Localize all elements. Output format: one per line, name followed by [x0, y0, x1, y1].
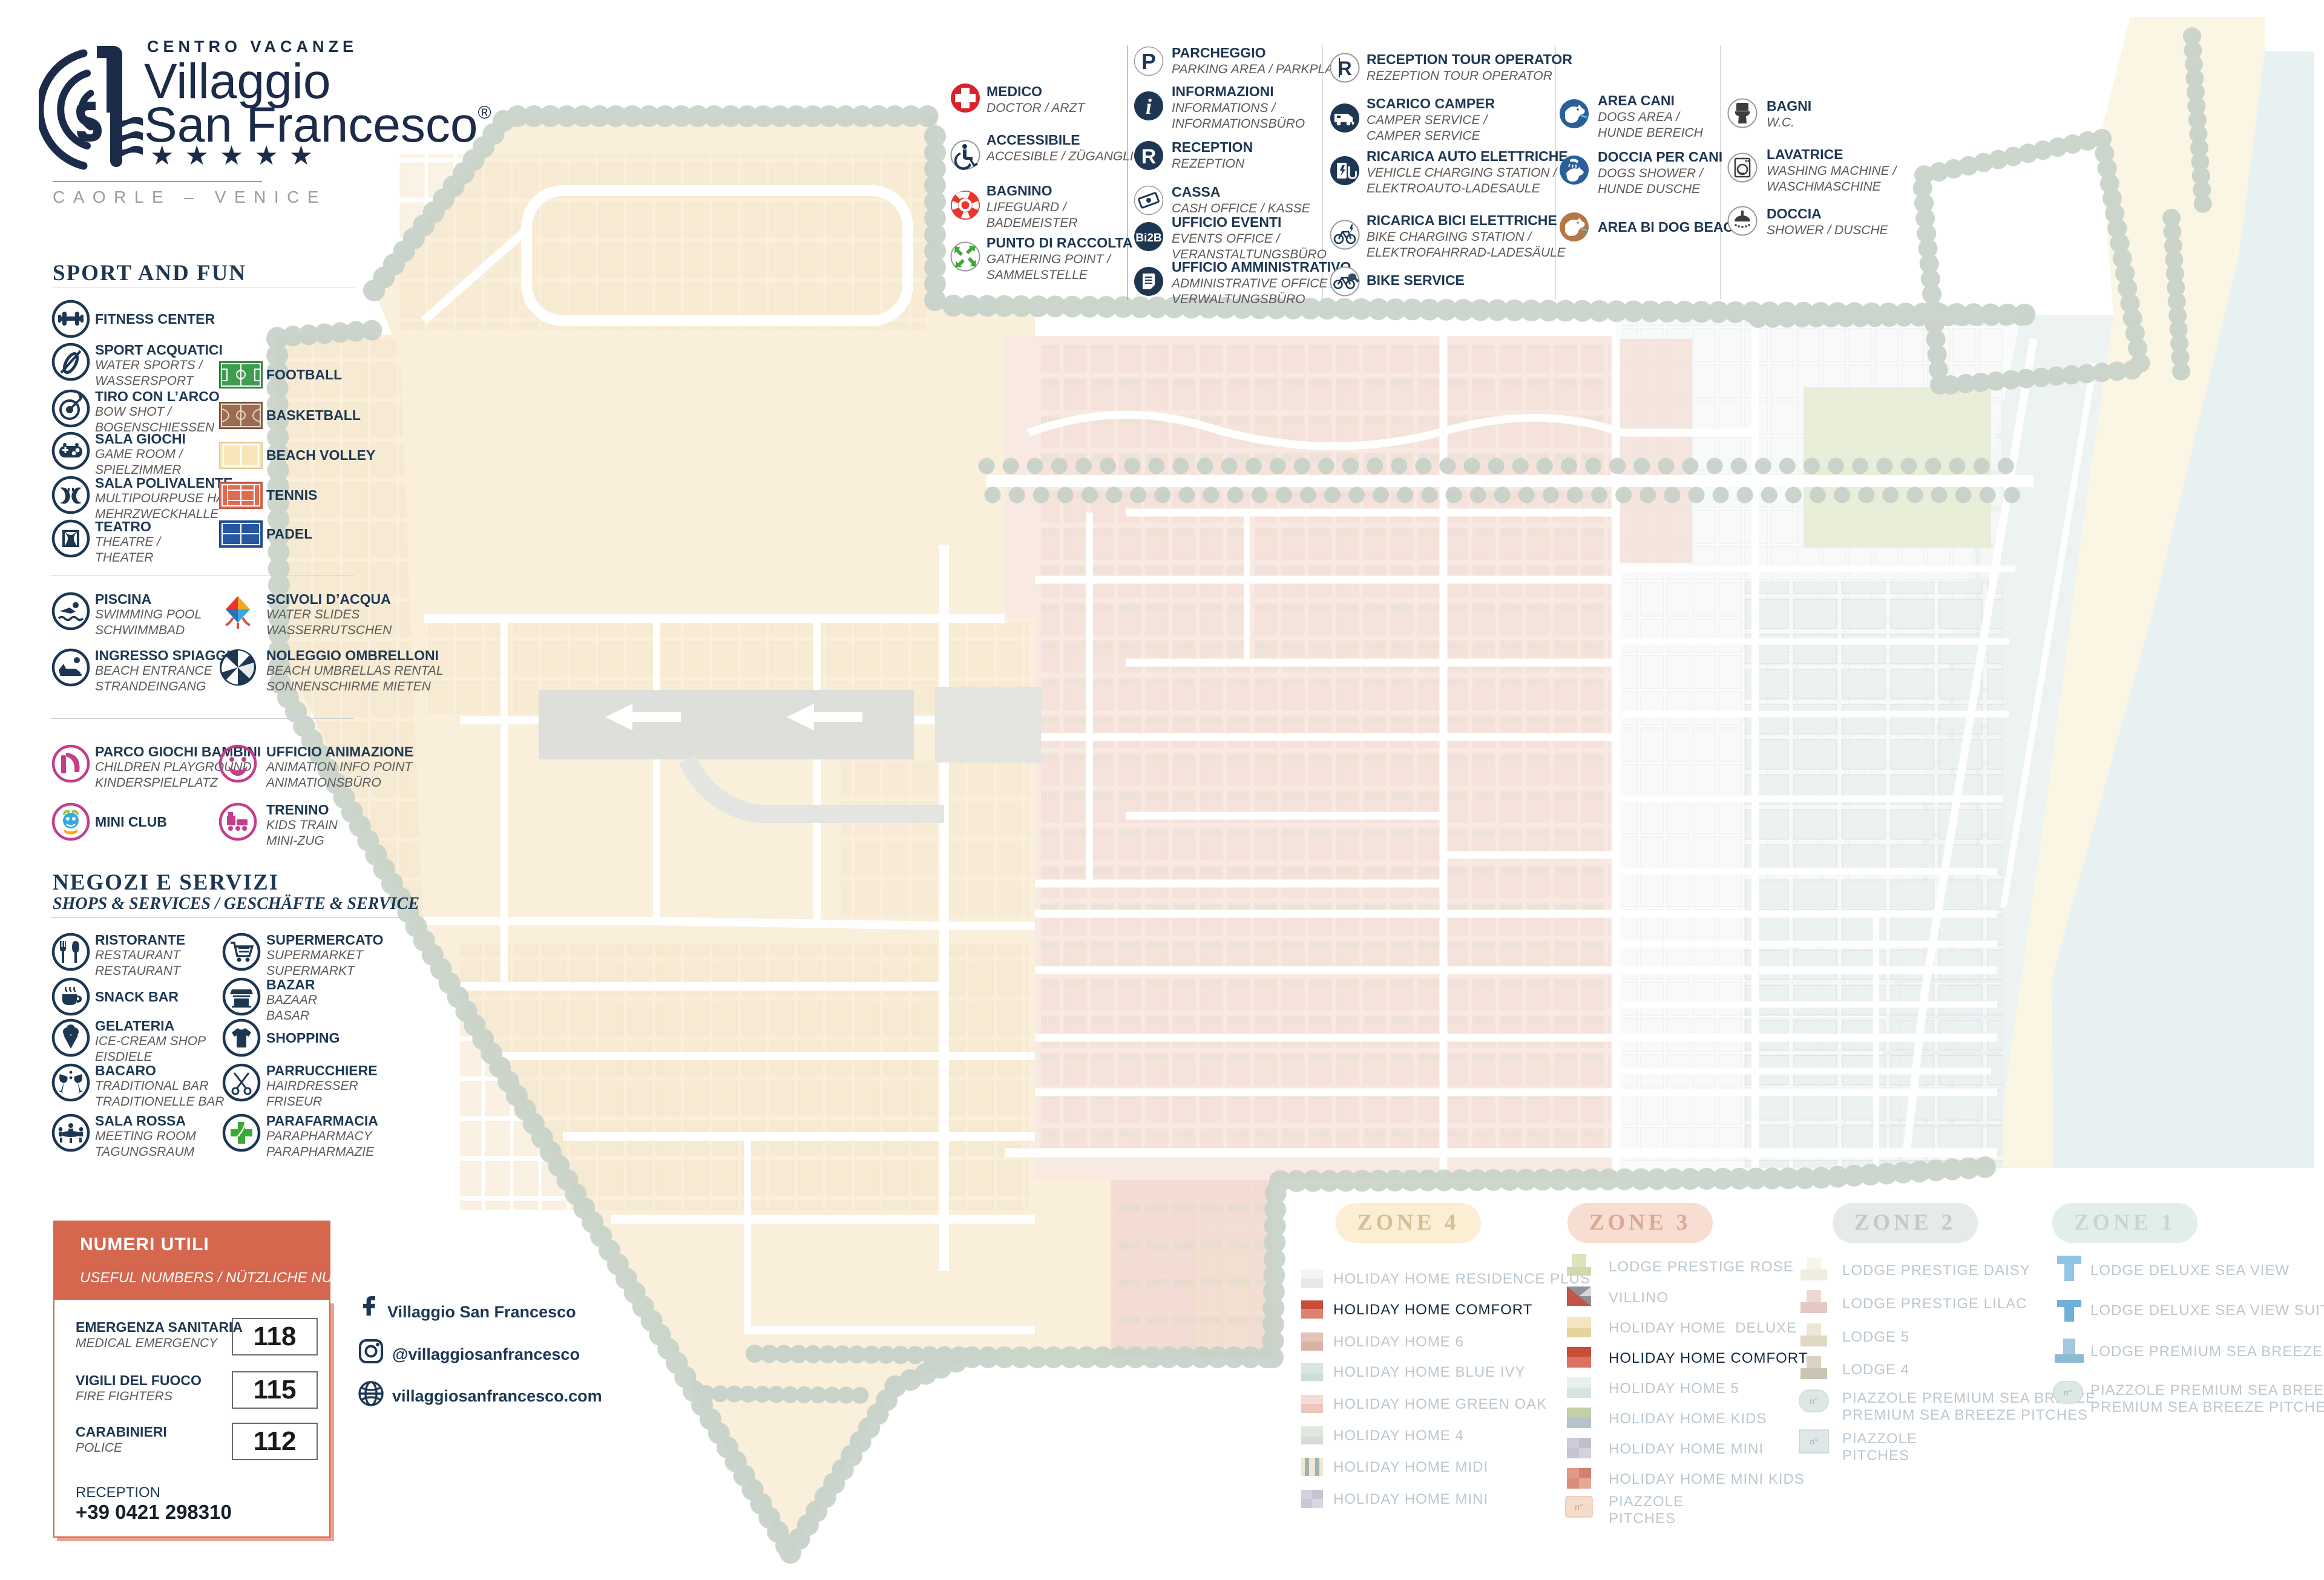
svg-text:n°: n°	[2064, 1388, 2072, 1397]
svg-text:n°: n°	[1810, 1437, 1817, 1446]
svg-text:Bi2B: Bi2B	[1135, 232, 1161, 244]
svg-text:i: i	[1146, 94, 1152, 119]
svg-text:R: R	[1141, 145, 1157, 168]
svg-text:P: P	[1141, 49, 1156, 74]
svg-text:n°: n°	[1810, 1396, 1817, 1406]
svg-text:n°: n°	[1575, 1502, 1583, 1512]
